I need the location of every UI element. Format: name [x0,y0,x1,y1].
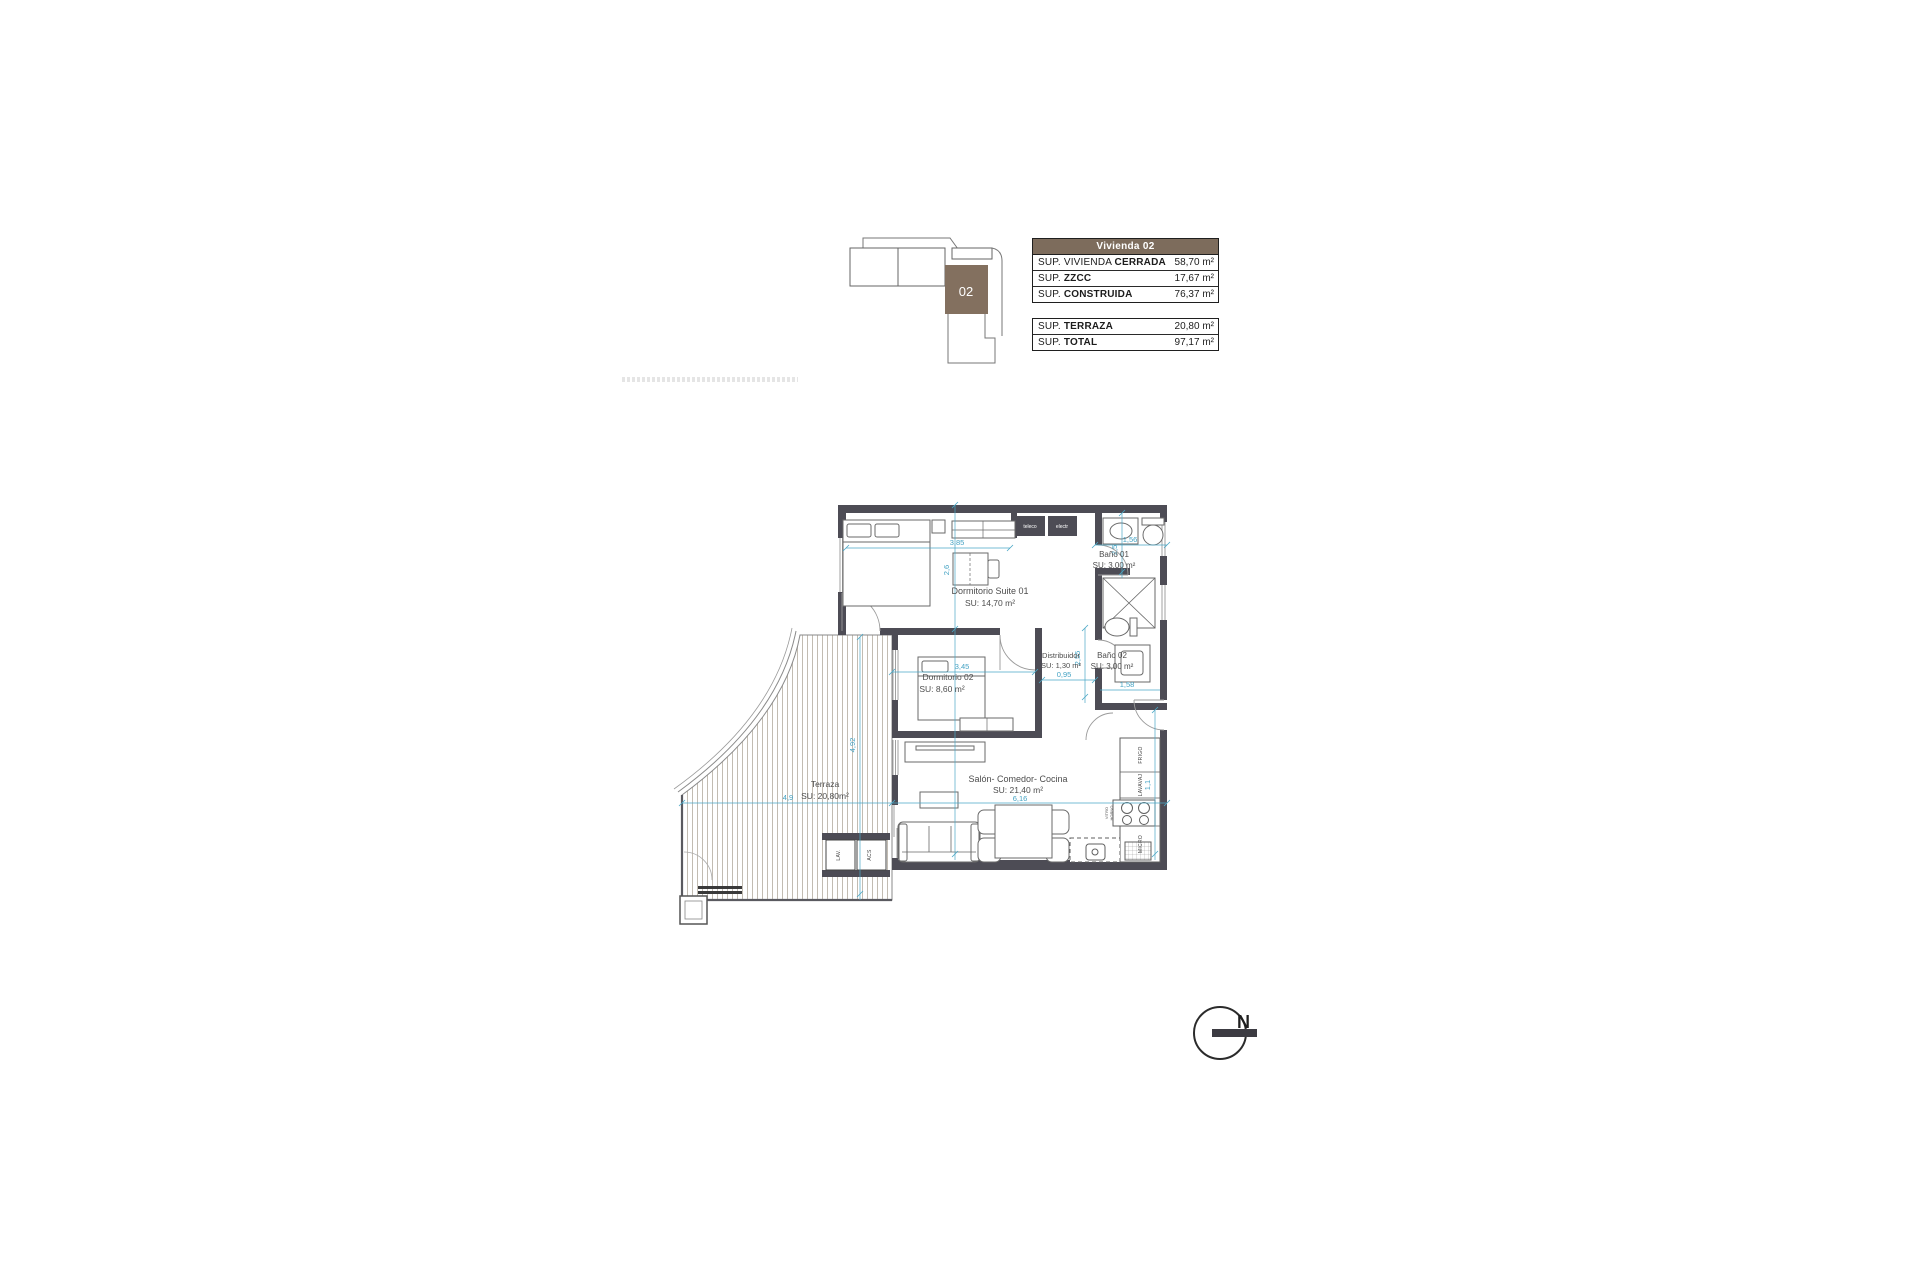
dining-table [995,805,1052,858]
electr-label: electr [1056,524,1069,530]
horno-label: HORNO [1109,806,1114,821]
key-plan-roofline [863,238,958,249]
terrace-deck [674,628,892,924]
dim-terraza-height: 4,92 [848,738,857,753]
side-table [920,792,958,808]
row-value: 58,70 m² [1175,255,1214,270]
hob-burner [1122,803,1133,814]
faint-watermark [622,377,798,382]
nightstand [932,520,945,533]
terraza-area: SU: 20,80m² [801,791,849,801]
dorm2-area: SU: 8,60 m² [919,684,965,694]
unit-02-label: 02 [959,284,973,299]
acs-label: ACS [867,849,873,861]
toilet [1105,618,1129,636]
dim-bano1-width: 1,56 [1123,535,1138,544]
distribuidor-name: Distribuidor [1042,651,1080,660]
north-indicator: N [1185,1002,1270,1067]
table-row: SUP. TOTAL 97,17 m² [1033,334,1218,350]
sofa [898,822,980,862]
sofa-armrest [899,824,907,861]
dim-terraza-width: 4,9 [783,793,793,802]
table-row: SUP. CONSTRUIDA 76,37 m² [1033,286,1218,302]
lav-label: LAV. [836,849,842,860]
dim-entry-height: 1,1 [1143,780,1152,790]
wardrobe [952,521,1015,538]
utility-boxes: teleco electr [1016,516,1077,536]
desk [953,553,988,585]
floor-plan: teleco electr [640,490,1200,930]
row-label: SUP. CONSTRUIDA [1038,287,1133,302]
floorplan-sheet: 02 Vivienda 02 SUP. VIVIENDA CERRADA 58,… [0,0,1920,1280]
dim-bano2-width: 1,58 [1120,680,1135,689]
bano2-name: Baño 02 [1097,651,1127,660]
distribuidor-area: SU: 1,30 m² [1041,661,1082,670]
table-row: SUP. ZZCC 17,67 m² [1033,270,1218,286]
toilet-tank [1142,518,1164,525]
salon-door-arc [1086,713,1113,740]
hob-burner [1123,816,1132,825]
row-value: 97,17 m² [1175,335,1214,350]
key-plan-lower-wing [948,314,995,363]
toilet-tank [1130,618,1137,636]
hob-burner [1140,816,1149,825]
dorm2-name: Dormitorio 02 [922,672,973,682]
fridge-label: FRIGO [1138,746,1144,763]
row-value: 20,80 m² [1175,319,1214,334]
key-plan-outline [992,248,1002,336]
bano1-name: Baño 01 [1099,550,1129,559]
sink-drain [1092,849,1098,855]
step [698,891,742,894]
teleco-label: teleco [1023,524,1037,530]
tv [916,746,974,750]
furniture-salon [898,742,1069,862]
pillow [847,524,871,537]
area-summary-table: Vivienda 02 SUP. VIVIENDA CERRADA 58,70 … [1032,238,1219,303]
row-label: SUP. TOTAL [1038,335,1097,350]
micro-label: MICRO [1138,835,1144,853]
hob-burner [1139,803,1150,814]
step [698,886,742,889]
table-row: SUP. VIVIENDA CERRADA 58,70 m² [1033,255,1218,270]
table-row: SUP. TERRAZA 20,80 m² [1033,319,1218,334]
dim-salon-width: 6,16 [1013,794,1028,803]
row-label: SUP. VIVIENDA CERRADA [1038,255,1166,270]
wardrobe [960,718,1013,731]
salon-area: SU: 21,40 m² [993,785,1043,795]
suite-area: SU: 14,70 m² [965,598,1015,608]
key-plan-block [952,248,992,259]
bano2-area: SU: 3,00 m² [1091,662,1134,671]
bano1-area: SU: 3,00 m² [1093,561,1136,570]
salon-name: Salón- Comedor- Cocina [968,774,1067,784]
pillow [875,524,899,537]
pillow [922,661,948,672]
row-label: SUP. TERRAZA [1038,319,1113,334]
dorm2-door [1000,635,1035,670]
dim-suite-width: 3,85 [950,538,965,547]
row-value: 17,67 m² [1175,271,1214,286]
planter-inner [685,901,702,919]
north-bar [1212,1029,1257,1037]
dim-distribuidor-width: 0,95 [1057,670,1072,679]
totals-table: SUP. TERRAZA 20,80 m² SUP. TOTAL 97,17 m… [1032,318,1219,351]
kitchen: FRIGO LAVAVAJ VITRO HORNO MICRO [1070,738,1160,862]
terraza-name: Terraza [811,779,840,789]
dim-dorm2-width: 3,45 [955,662,970,671]
key-plan: 02 [840,186,1010,376]
desk-chair [988,560,999,578]
dim-suite-height: 2,6 [942,565,951,575]
toilet [1143,525,1163,545]
north-label: N [1237,1012,1250,1032]
table-header: Vivienda 02 [1033,239,1218,255]
tv-unit [905,742,985,762]
row-label: SUP. ZZCC [1038,271,1091,286]
row-value: 76,37 m² [1175,287,1214,302]
sink-hob-unit [1113,800,1155,826]
suite-name: Dormitorio Suite 01 [951,586,1028,596]
